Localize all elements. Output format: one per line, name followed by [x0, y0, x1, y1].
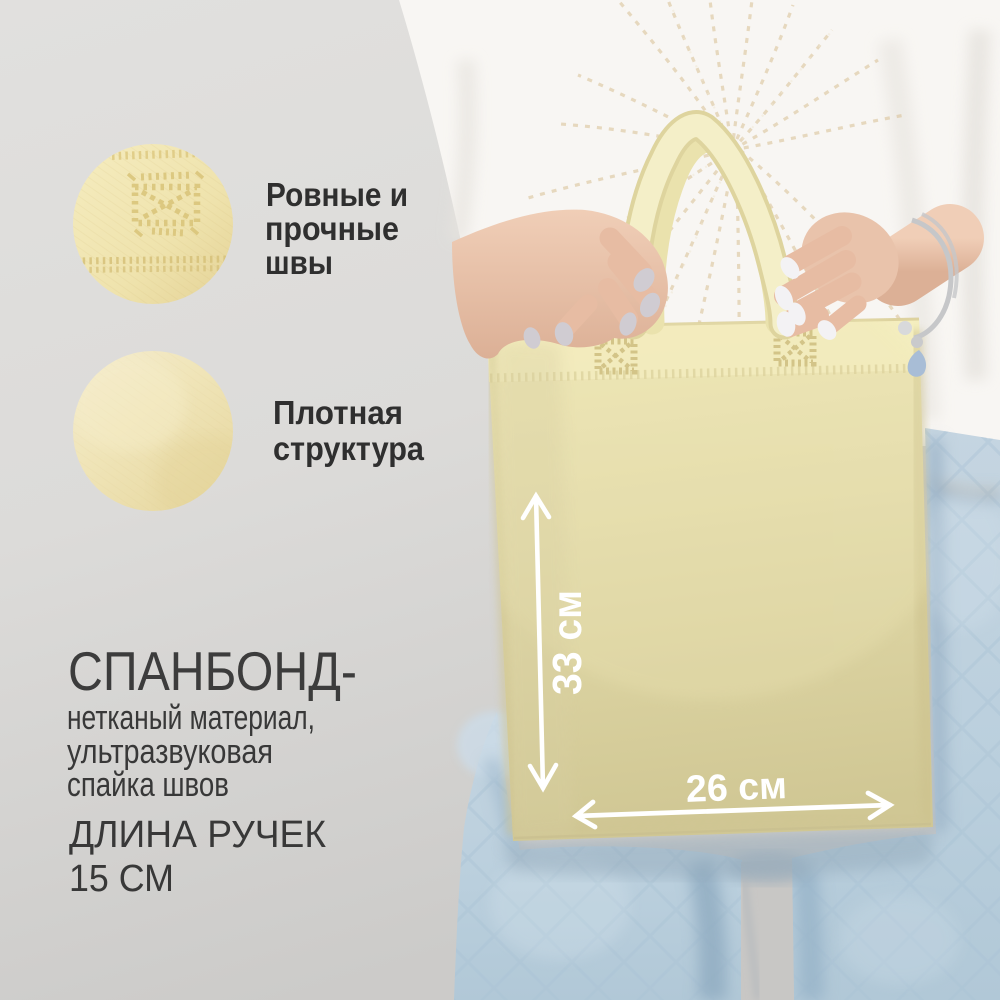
svg-text:швы: швы	[265, 244, 333, 281]
svg-text:СПАНБОНД-: СПАНБОНД-	[68, 640, 357, 702]
svg-text:33 см: 33 см	[544, 590, 590, 695]
svg-text:15 СМ: 15 СМ	[69, 858, 174, 900]
svg-text:26 см: 26 см	[685, 765, 788, 811]
svg-text:ДЛИНА РУЧЕК: ДЛИНА РУЧЕК	[69, 814, 326, 856]
svg-text:Ровные и: Ровные и	[266, 176, 408, 213]
svg-text:структура: структура	[273, 430, 425, 467]
svg-text:прочные: прочные	[265, 210, 399, 247]
svg-text:нетканый материал,: нетканый материал,	[67, 699, 315, 737]
svg-text:Плотная: Плотная	[273, 394, 403, 431]
svg-text:спайка швов: спайка швов	[67, 766, 229, 804]
